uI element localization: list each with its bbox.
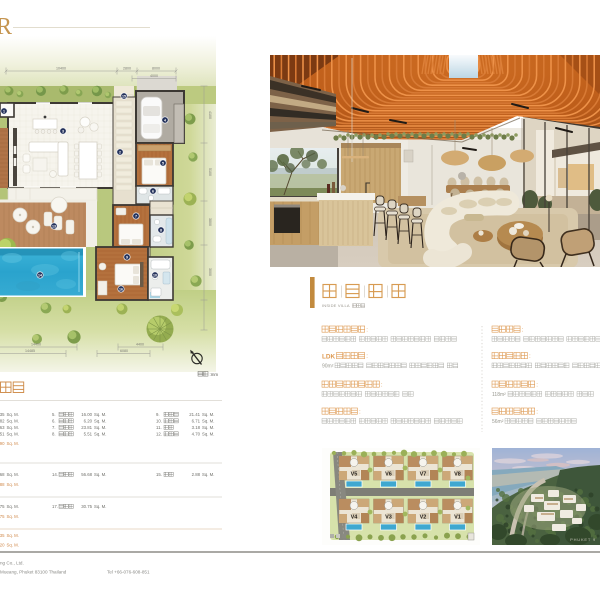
svg-text:5.51: 5.51 (0, 432, 5, 437)
svg-text:LDK: LDK (322, 354, 336, 361)
svg-text:90m²: 90m² (322, 364, 334, 370)
svg-text:Sq. M.: Sq. M. (7, 514, 19, 519)
svg-text::: : (381, 381, 383, 388)
svg-text:Sq. M.: Sq. M. (94, 432, 106, 437)
svg-text:5: 5 (162, 161, 164, 165)
svg-text:16.00: 16.00 (81, 412, 92, 417)
svg-text:Sq. M.: Sq. M. (7, 412, 19, 417)
svg-text:4000: 4000 (150, 74, 158, 78)
svg-text:Tel +66-076-608-851: Tel +66-076-608-851 (107, 570, 150, 575)
svg-text:V3: V3 (385, 515, 392, 521)
svg-text:PHUKET 9: PHUKET 9 (570, 537, 596, 542)
svg-text:1.35: 1.35 (0, 533, 5, 538)
svg-text::: : (536, 408, 538, 415)
svg-text:Sq. M.: Sq. M. (94, 504, 106, 509)
svg-text:14: 14 (38, 273, 42, 277)
svg-text:V7: V7 (420, 472, 427, 478)
svg-text:13: 13 (52, 224, 56, 228)
svg-text:14.: 14. (52, 472, 58, 477)
svg-text:8.: 8. (52, 432, 56, 437)
svg-text:0.75: 0.75 (0, 514, 5, 519)
svg-text:4.70: 4.70 (192, 432, 201, 437)
svg-text:6080: 6080 (120, 349, 128, 353)
svg-text:6.20: 6.20 (84, 419, 93, 424)
svg-text:5.: 5. (52, 412, 56, 417)
svg-text:15: 15 (122, 94, 126, 98)
svg-text:V4: V4 (351, 515, 359, 521)
svg-text:3: 3 (62, 129, 64, 133)
svg-text:Sq. M.: Sq. M. (94, 412, 106, 417)
svg-text:2.88: 2.88 (192, 472, 201, 477)
svg-text::: : (529, 353, 531, 360)
svg-text::: : (366, 353, 368, 360)
svg-text:6.71: 6.71 (192, 419, 201, 424)
svg-text:8000: 8000 (152, 66, 160, 70)
svg-text:14400: 14400 (31, 342, 41, 346)
svg-text::: : (359, 408, 361, 415)
svg-text:8: 8 (160, 228, 162, 232)
svg-text:6.: 6. (52, 419, 56, 424)
svg-text::mm: :mm (210, 372, 219, 377)
svg-text:Sq. M.: Sq. M. (7, 472, 19, 477)
svg-text:9.: 9. (156, 412, 160, 417)
svg-text:4: 4 (164, 118, 166, 122)
svg-text:Sq. M.: Sq. M. (7, 543, 19, 548)
svg-text:30.75: 30.75 (81, 504, 92, 509)
svg-text:V8: V8 (454, 472, 461, 478)
svg-text:3.82: 3.82 (0, 419, 5, 424)
svg-text:1: 1 (3, 109, 5, 113)
svg-text:5100: 5100 (208, 168, 212, 176)
svg-text:Sq. M.: Sq. M. (202, 412, 214, 417)
svg-text:7: 7 (135, 214, 137, 218)
svg-text:16: 16 (119, 287, 123, 291)
svg-text:3000: 3000 (208, 268, 212, 276)
svg-text:Sq. M.: Sq. M. (94, 419, 106, 424)
svg-text:INSIDE VILLA: INSIDE VILLA (322, 303, 350, 308)
svg-text:7.90: 7.90 (0, 441, 5, 446)
svg-text:V6: V6 (385, 472, 392, 478)
svg-text:9: 9 (126, 255, 128, 259)
svg-text:2800: 2800 (123, 66, 131, 70)
svg-text:23.81: 23.81 (81, 425, 92, 430)
svg-text:ng Co., Ltd.: ng Co., Ltd. (0, 561, 24, 566)
svg-text:6.35: 6.35 (0, 412, 5, 417)
svg-text:Sq. M.: Sq. M. (202, 432, 214, 437)
svg-text:2: 2 (119, 150, 121, 154)
svg-text:Sq. M.: Sq. M. (94, 425, 106, 430)
svg-text:6.68: 6.68 (0, 472, 5, 477)
svg-text::: : (536, 381, 538, 388)
svg-text:7.: 7. (52, 425, 56, 430)
svg-text:V5: V5 (351, 472, 358, 478)
svg-text:V1: V1 (454, 515, 461, 521)
svg-text:3800: 3800 (208, 218, 212, 226)
svg-text:10: 10 (153, 273, 157, 277)
svg-text:Sq. M.: Sq. M. (94, 472, 106, 477)
svg-text:Sq. M.: Sq. M. (7, 425, 19, 430)
svg-text:56m²: 56m² (492, 419, 504, 425)
svg-text:Sq. M.: Sq. M. (202, 472, 214, 477)
svg-text:15.: 15. (156, 472, 162, 477)
svg-text:17.: 17. (52, 504, 58, 509)
svg-text:4400: 4400 (136, 342, 144, 346)
svg-text:6: 6 (152, 189, 154, 193)
svg-text:Sq. M.: Sq. M. (7, 533, 19, 538)
svg-text:Sq. M.: Sq. M. (202, 425, 214, 430)
svg-text:R: R (0, 14, 12, 40)
svg-text:12.: 12. (156, 432, 162, 437)
svg-text:Sq. M.: Sq. M. (7, 482, 19, 487)
svg-text:Sq. M.: Sq. M. (7, 441, 19, 446)
svg-text:118m²: 118m² (492, 392, 506, 398)
svg-text::: : (366, 326, 368, 333)
svg-text:10.: 10. (156, 419, 162, 424)
svg-text:10400: 10400 (56, 66, 66, 70)
svg-text:5.51: 5.51 (84, 432, 93, 437)
svg-text:Sq. M.: Sq. M. (7, 504, 19, 509)
svg-text:9.63: 9.63 (0, 425, 5, 430)
svg-text:Mueang, Phuket 83100 Thailand: Mueang, Phuket 83100 Thailand (0, 570, 67, 575)
svg-text:9.20: 9.20 (0, 543, 5, 548)
svg-text:11.: 11. (156, 425, 162, 430)
svg-text:14485: 14485 (25, 349, 35, 353)
svg-text:56.68: 56.68 (81, 472, 92, 477)
svg-text::: : (522, 326, 524, 333)
svg-text:21.41: 21.41 (189, 412, 200, 417)
svg-text:V2: V2 (420, 515, 427, 521)
svg-text:3.18: 3.18 (192, 425, 201, 430)
svg-text:0.75: 0.75 (0, 504, 5, 509)
svg-text:2.88: 2.88 (0, 482, 5, 487)
svg-text:Sq. M.: Sq. M. (7, 432, 19, 437)
svg-text:Sq. M.: Sq. M. (202, 419, 214, 424)
svg-text:4100: 4100 (208, 111, 212, 119)
svg-text:Sq. M.: Sq. M. (7, 419, 19, 424)
